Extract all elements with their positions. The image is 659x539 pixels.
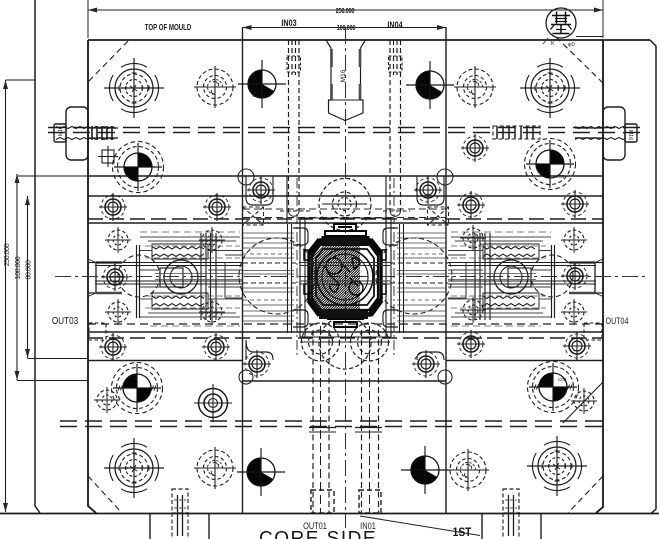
svg-text:CORE SIDE: CORE SIDE <box>259 529 377 539</box>
svg-text:100.000: 100.000 <box>15 256 22 279</box>
svg-text:250.000: 250.000 <box>336 7 355 15</box>
svg-text:1ST: 1ST <box>453 526 472 539</box>
svg-text:OUT03: OUT03 <box>52 314 78 326</box>
svg-text:OUT04: OUT04 <box>606 315 629 326</box>
svg-text:100.000: 100.000 <box>337 24 356 32</box>
svg-text:M16: M16 <box>627 130 633 140</box>
svg-text:TOP OF MOULD: TOP OF MOULD <box>145 22 192 32</box>
svg-text:C03: C03 <box>558 377 567 382</box>
svg-text:C03: C03 <box>556 174 565 179</box>
svg-text:IN03: IN03 <box>281 18 297 28</box>
svg-text:M16: M16 <box>340 69 347 82</box>
svg-text:φ0: φ0 <box>568 42 575 48</box>
svg-text:C03: C03 <box>427 93 436 98</box>
svg-text:K: K <box>551 41 555 47</box>
svg-text:C03: C03 <box>252 93 261 98</box>
svg-text:250.000: 250.000 <box>4 243 11 266</box>
svg-text:M16: M16 <box>58 126 64 136</box>
svg-text:80.000: 80.000 <box>26 260 33 280</box>
svg-text:IN04: IN04 <box>387 20 403 30</box>
